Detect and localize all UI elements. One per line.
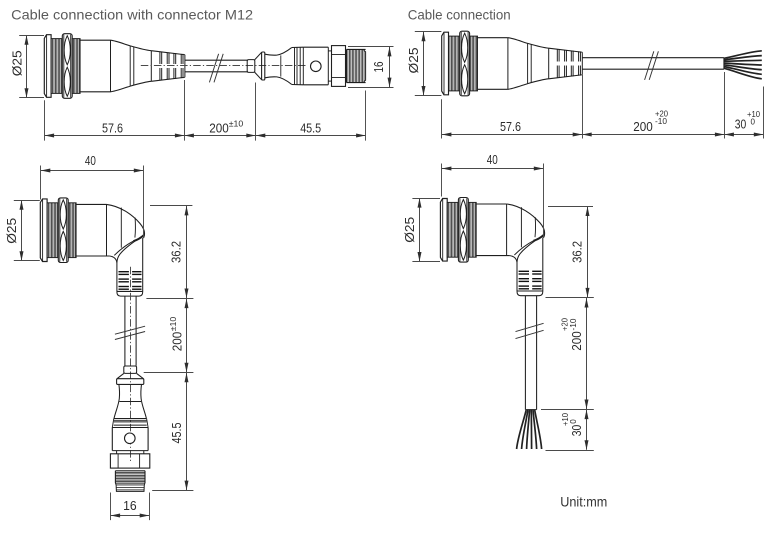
svg-text:30: 30: [570, 425, 584, 437]
svg-text:36.2: 36.2: [570, 241, 584, 263]
svg-text:200: 200: [170, 332, 184, 352]
svg-text:200: 200: [209, 121, 229, 135]
svg-text:40: 40: [85, 154, 96, 168]
svg-text:30: 30: [735, 118, 747, 132]
svg-text:Ø25: Ø25: [407, 47, 421, 73]
svg-text:57.6: 57.6: [500, 120, 521, 134]
svg-text:Cable connection: Cable connection: [408, 7, 511, 22]
svg-text:16: 16: [372, 61, 386, 72]
svg-text:0: 0: [751, 118, 756, 127]
svg-text:40: 40: [487, 153, 498, 167]
svg-text:200: 200: [633, 120, 653, 134]
svg-text:45.5: 45.5: [300, 121, 321, 135]
svg-text:45.5: 45.5: [170, 422, 184, 443]
svg-text:200: 200: [570, 331, 584, 351]
svg-text:±10: ±10: [229, 120, 244, 129]
svg-text:Ø25: Ø25: [403, 217, 417, 243]
svg-text:57.6: 57.6: [102, 121, 123, 135]
svg-text:-10: -10: [655, 117, 668, 126]
svg-text:Unit:mm: Unit:mm: [560, 494, 607, 510]
svg-text:Cable connection with connecto: Cable connection with connector M12: [11, 7, 253, 22]
svg-text:-10: -10: [569, 318, 578, 331]
svg-text:16: 16: [123, 499, 137, 513]
svg-text:±10: ±10: [169, 316, 178, 331]
svg-text:36.2: 36.2: [170, 241, 184, 263]
svg-text:0: 0: [569, 419, 578, 424]
svg-text:Ø25: Ø25: [5, 218, 19, 244]
svg-text:Ø25: Ø25: [11, 50, 25, 76]
